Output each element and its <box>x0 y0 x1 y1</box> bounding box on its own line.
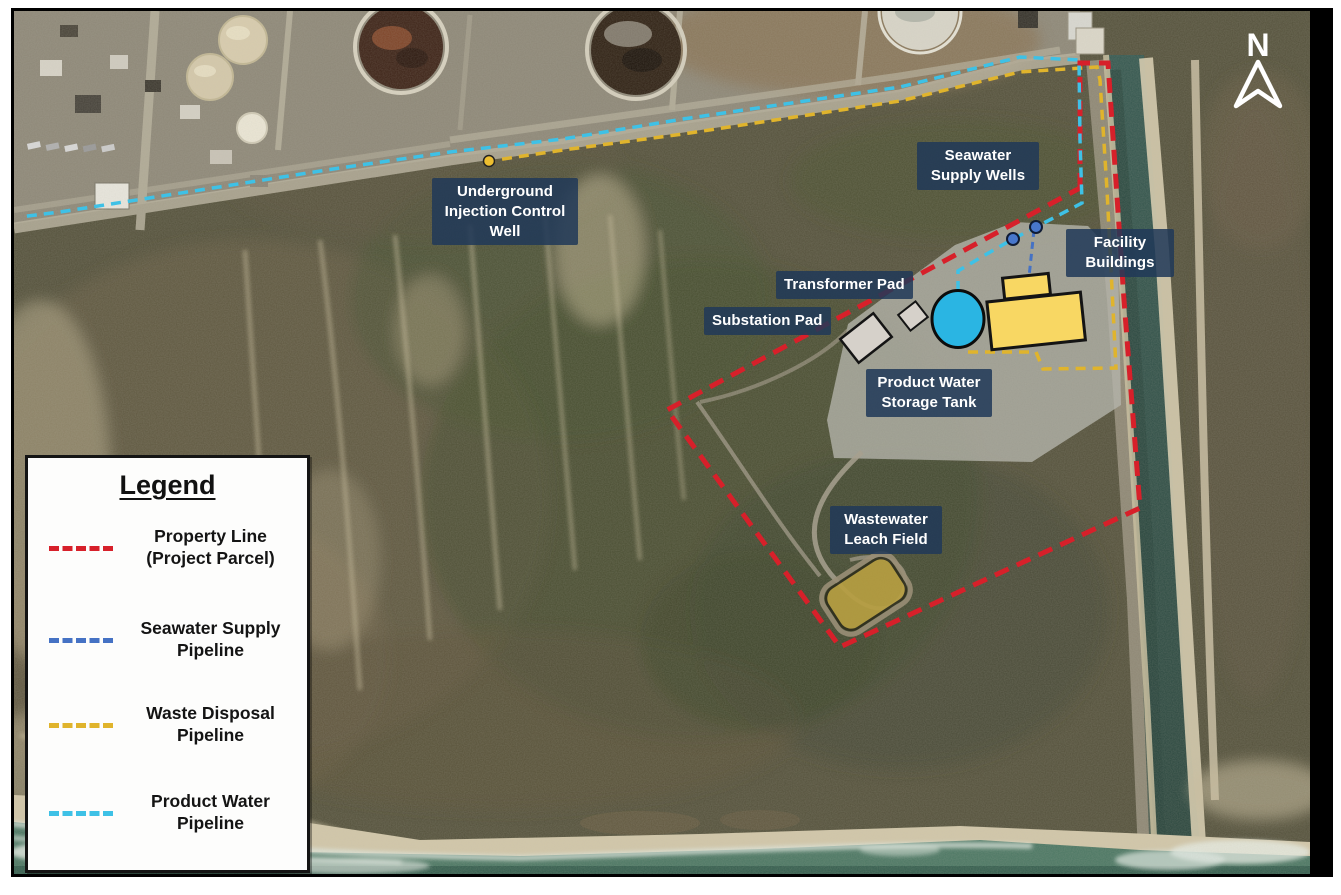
legend: Legend Property Line (Project Parcel) Se… <box>25 455 310 873</box>
legend-item-label: Property Line (Project Parcel) <box>124 526 297 570</box>
well-marker <box>1030 221 1042 233</box>
underground-injection-well-marker <box>484 156 495 167</box>
site-map-page: N Underground Injection Control Well Sea… <box>0 0 1341 895</box>
label-transformer-pad: Transformer Pad <box>776 271 913 299</box>
legend-item-label: Product Water Pipeline <box>124 791 297 835</box>
well-marker <box>1007 233 1019 245</box>
label-wastewater-leach-field: Wastewater Leach Field <box>830 506 942 554</box>
north-label: N <box>1246 27 1269 63</box>
waste-disposal-pipeline-swatch <box>49 723 113 728</box>
legend-item-product-water-pipeline: Product Water Pipeline <box>38 778 297 848</box>
label-substation-pad: Substation Pad <box>704 307 831 335</box>
property-line-swatch <box>49 546 113 551</box>
legend-item-property-line: Property Line (Project Parcel) <box>38 513 297 583</box>
legend-item-label: Waste Disposal Pipeline <box>124 703 297 747</box>
legend-item-seawater-supply-pipeline: Seawater Supply Pipeline <box>38 605 297 675</box>
facility-building-large <box>987 292 1086 350</box>
label-seawater-supply-wells: Seawater Supply Wells <box>917 142 1039 190</box>
label-underground-injection-control-well: Underground Injection Control Well <box>432 178 578 245</box>
label-facility-buildings: Facility Buildings <box>1066 229 1174 277</box>
product-water-storage-tank-shape <box>932 291 984 348</box>
legend-item-waste-disposal-pipeline: Waste Disposal Pipeline <box>38 690 297 760</box>
legend-item-label: Seawater Supply Pipeline <box>124 618 297 662</box>
legend-title: Legend <box>28 470 307 501</box>
seawater-supply-pipeline-swatch <box>49 638 113 643</box>
product-water-pipeline-swatch <box>49 811 113 816</box>
label-product-water-storage-tank: Product Water Storage Tank <box>866 369 992 417</box>
